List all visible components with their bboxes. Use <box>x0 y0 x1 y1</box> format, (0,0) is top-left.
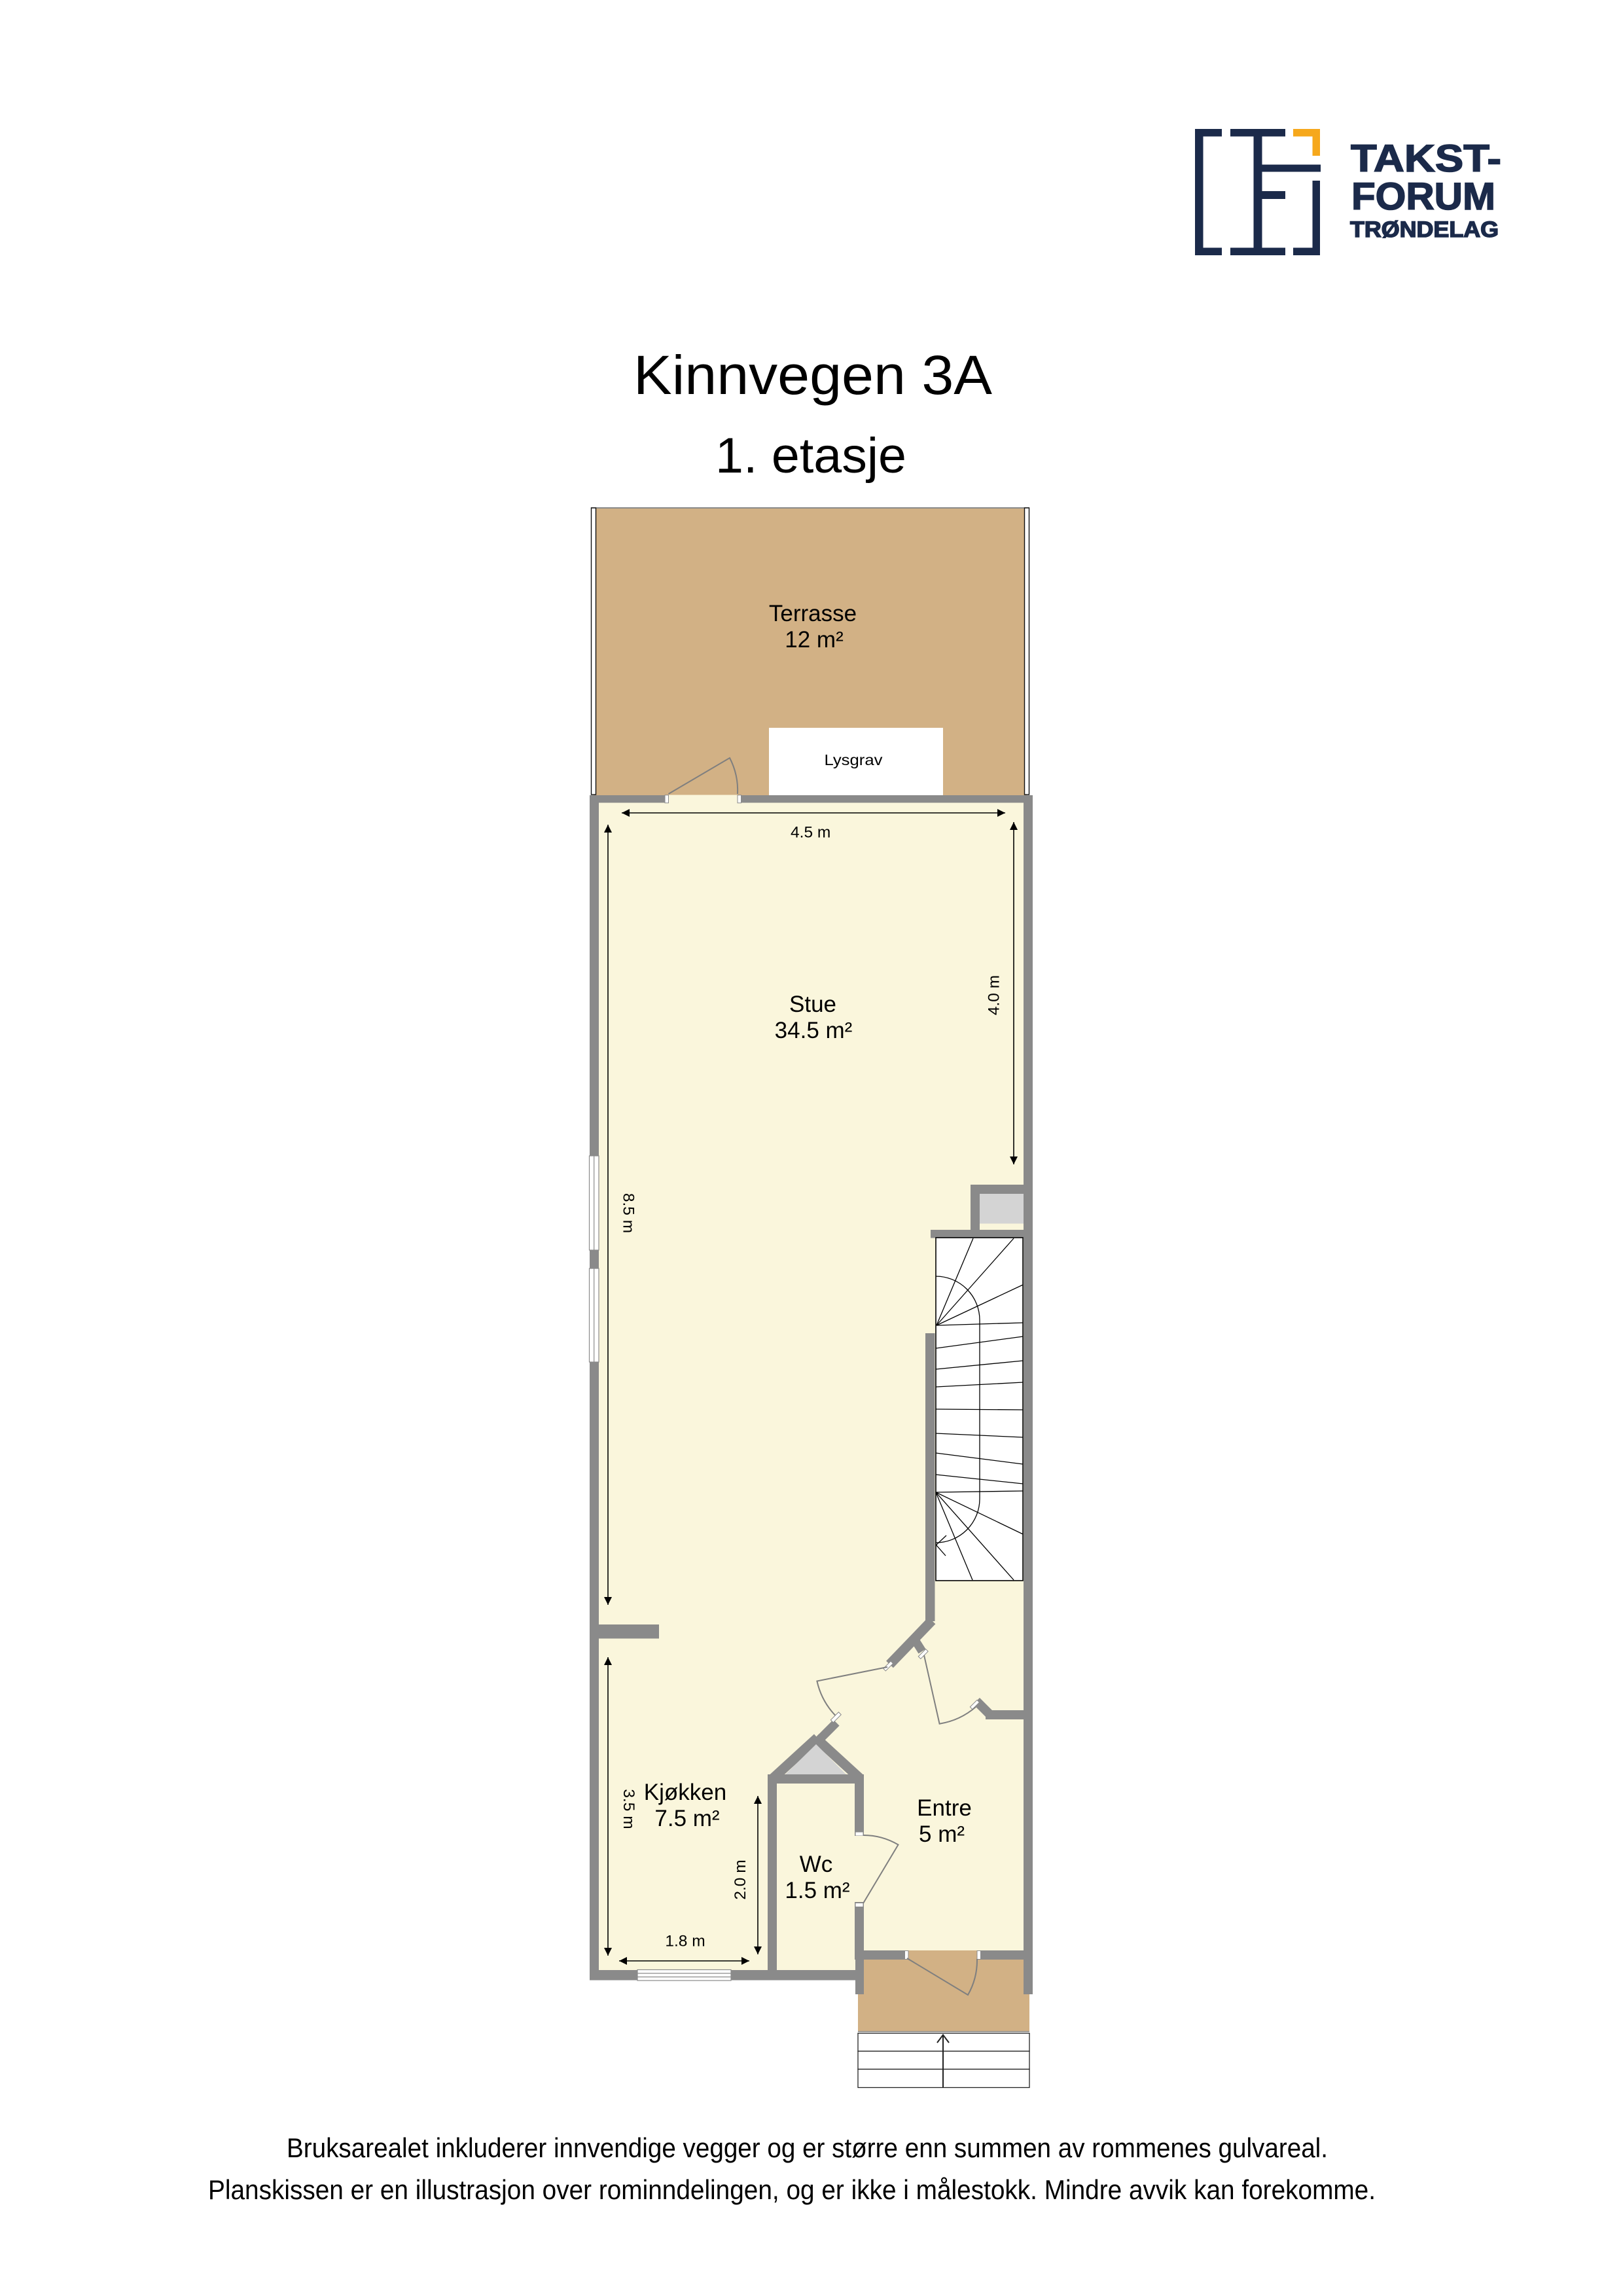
svg-text:Terrasse: Terrasse <box>769 601 857 626</box>
svg-text:Kinnvegen 3A: Kinnvegen 3A <box>633 344 992 406</box>
svg-text:Bruksarealet inkluderer innven: Bruksarealet inkluderer innvendige vegge… <box>287 2132 1328 2163</box>
svg-text:4.0 m: 4.0 m <box>986 975 1003 1015</box>
svg-text:5 m²: 5 m² <box>919 1821 965 1847</box>
svg-text:7.5 m²: 7.5 m² <box>654 1806 719 1831</box>
svg-text:1. etasje: 1. etasje <box>715 428 906 484</box>
svg-text:8.5 m: 8.5 m <box>620 1193 637 1233</box>
svg-text:34.5 m²: 34.5 m² <box>775 1018 853 1043</box>
svg-text:12 m²: 12 m² <box>785 627 843 653</box>
svg-text:FORUM: FORUM <box>1351 175 1495 218</box>
svg-text:Planskissen er en illustrasjon: Planskissen er en illustrasjon over romi… <box>208 2174 1376 2205</box>
svg-text:1.8 m: 1.8 m <box>665 1933 705 1950</box>
svg-text:Stue: Stue <box>789 992 836 1017</box>
svg-text:3.5 m: 3.5 m <box>620 1789 637 1829</box>
svg-text:Lysgrav: Lysgrav <box>825 751 883 768</box>
svg-text:TAKST-: TAKST- <box>1351 137 1501 180</box>
svg-text:Entre: Entre <box>917 1795 972 1821</box>
svg-text:4.5 m: 4.5 m <box>791 824 830 842</box>
svg-text:Kjøkken: Kjøkken <box>644 1780 726 1805</box>
svg-text:TRØNDELAG: TRØNDELAG <box>1350 217 1499 242</box>
svg-text:2.0 m: 2.0 m <box>732 1859 749 1899</box>
svg-text:1.5 m²: 1.5 m² <box>785 1878 849 1903</box>
svg-text:Wc: Wc <box>800 1852 833 1877</box>
